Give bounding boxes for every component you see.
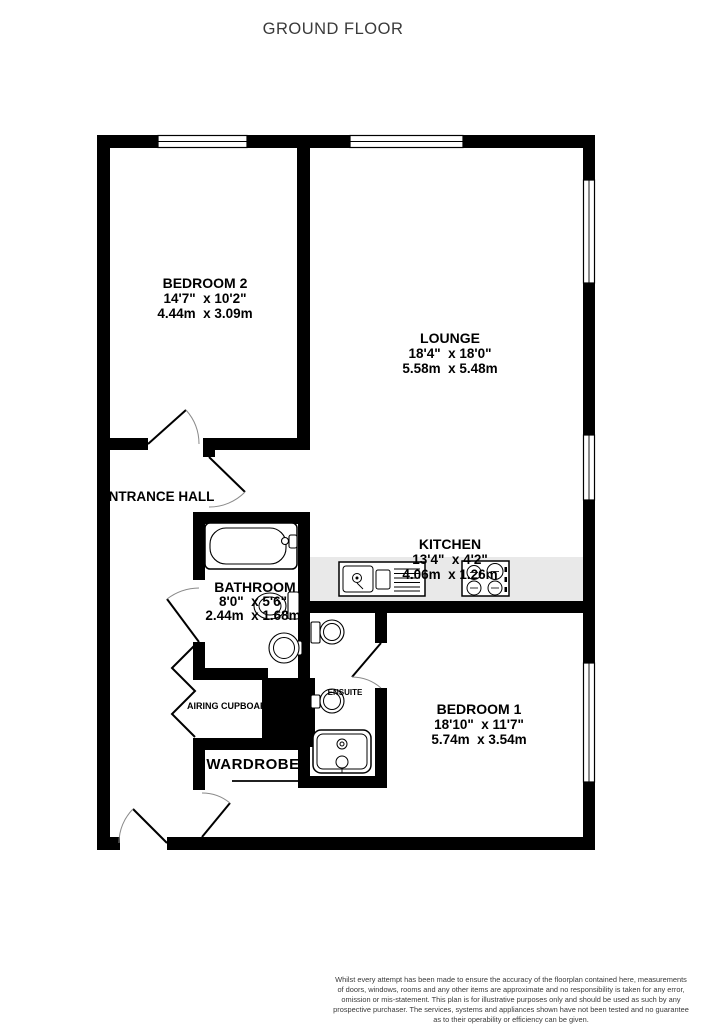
door-lounge [209, 457, 245, 507]
entrance-hall-label: ENTRANCE HALL [100, 489, 215, 504]
window-lounge-top [350, 136, 463, 148]
bedroom1-name: BEDROOM 1 [437, 701, 522, 717]
wall-bedroom2-bottom-left [110, 438, 148, 450]
bedroom2-metric: 4.44m x 3.09m [157, 306, 252, 321]
wall-wardrobe-top [193, 738, 310, 750]
wall-bathroom-bottom [193, 668, 268, 680]
ensuite-toilet [311, 620, 344, 644]
door-entrance [119, 809, 167, 843]
page-title: GROUND FLOOR [263, 20, 404, 38]
wall-bedroom2-bottom-right [203, 438, 310, 450]
wall-hall-door-post [203, 438, 215, 457]
bathroom-basin [269, 633, 302, 663]
kitchen-imperial: 13'4" x 4'2" [412, 552, 488, 567]
lounge-imperial: 18'4" x 18'0" [408, 346, 491, 361]
wall-ensuite-right [375, 688, 387, 788]
airing-cupboard-label: AIRING CUPBOARD [187, 701, 274, 711]
bathroom-name: BATHROOM [214, 579, 295, 595]
wall-bathroom-left-upper [193, 512, 205, 580]
kitchen-metric: 4.06m x 1.26m [402, 567, 497, 582]
footer: Whilst every attempt has been made to en… [333, 975, 689, 1024]
bedroom2-imperial: 14'7" x 10'2" [163, 291, 246, 306]
floorplan-svg: GROUND FLOOR ENTRANCE HALL AIRING CUPBOA… [0, 0, 703, 1024]
windows [158, 136, 595, 783]
wall-bottom [167, 837, 595, 850]
wall-bedroom2-lounge-divider [297, 135, 310, 450]
door-bedroom1 [202, 793, 230, 837]
lounge-name: LOUNGE [420, 330, 480, 346]
bedroom1-imperial: 18'10" x 11'7" [434, 717, 524, 732]
lounge-metric: 5.58m x 5.48m [402, 361, 497, 376]
window-lounge-right-lower [584, 435, 595, 500]
wall-bottom-left-stub [97, 837, 120, 850]
disclaimer-line-1: Whilst every attempt has been made to en… [335, 975, 687, 984]
kitchen-name: KITCHEN [419, 536, 481, 552]
bathtub [205, 523, 297, 569]
disclaimer-line-2: of doors, windows, rooms and any other i… [337, 985, 684, 994]
floorplan-page: GROUND FLOOR ENTRANCE HALL AIRING CUPBOA… [0, 0, 703, 1024]
wall-ensuite-bottom [310, 776, 387, 788]
airing-cupboard-bifold-doors [172, 645, 195, 737]
window-bedroom2-top [158, 136, 247, 148]
bedroom1-metric: 5.74m x 3.54m [431, 732, 526, 747]
door-bathroom [167, 588, 199, 642]
wardrobe-label: WARDROBE [206, 756, 299, 773]
wall-ensuite-right-post [375, 613, 387, 643]
disclaimer-line-5: as to their operability or efficiency ca… [433, 1015, 589, 1024]
window-bedroom1-right [584, 663, 595, 782]
bathroom-metric: 2.44m x 1.68m [205, 608, 300, 623]
wall-left [97, 135, 110, 850]
door-ensuite [352, 643, 381, 688]
disclaimer-line-4: prospective purchaser. The services, sys… [333, 1005, 689, 1014]
ensuite-label: ENSUITE [328, 688, 363, 697]
disclaimer-line-3: omission or mis-statement. This plan is … [341, 995, 680, 1004]
window-lounge-right-upper [584, 180, 595, 283]
shower-tray [313, 730, 371, 773]
wall-bathroom-top [193, 512, 310, 524]
bedroom2-name: BEDROOM 2 [163, 275, 248, 291]
wall-kitchen-bottom [298, 601, 583, 613]
bathroom-imperial: 8'0" x 5'6" [219, 594, 287, 609]
door-bedroom2 [148, 410, 199, 444]
